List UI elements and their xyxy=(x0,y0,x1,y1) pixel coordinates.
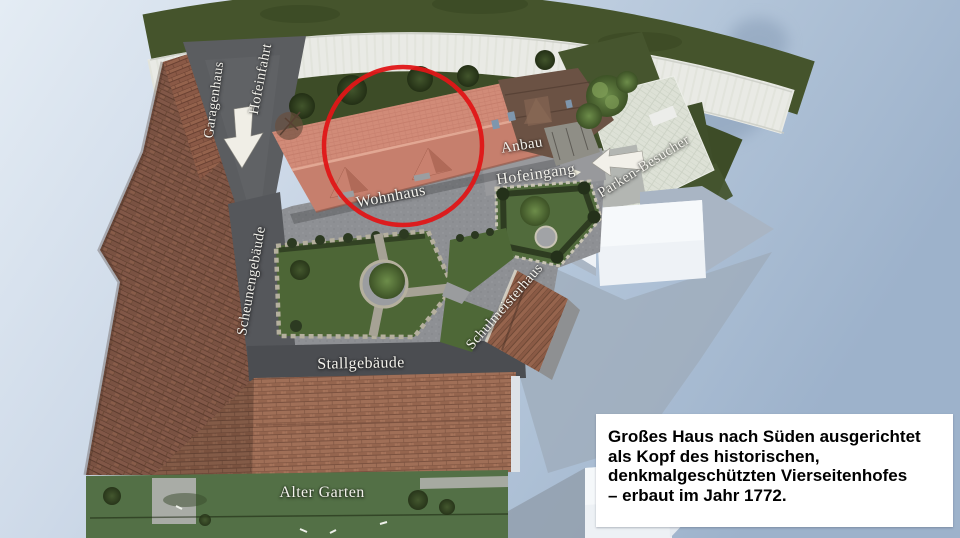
annotation-box: Großes Haus nach Süden ausgerichtet als … xyxy=(596,414,953,527)
label-stallgebaeude: Stallgebäude xyxy=(317,354,405,374)
old-garden xyxy=(86,470,508,538)
label-alter-garten: Alter Garten xyxy=(279,484,364,502)
annotation-line: denkmalgeschützten Vierseitenhofes xyxy=(608,466,945,486)
site-plan-slide: Garagenhaus Hofeinfahrt Wohnhaus Anbau H… xyxy=(0,0,960,538)
annotation-line: – erbaut im Jahr 1772. xyxy=(608,486,945,506)
annotation-line: als Kopf des historischen, xyxy=(608,447,945,467)
courtyard-garden xyxy=(276,229,453,337)
annotation-line: Großes Haus nach Süden ausgerichtet xyxy=(608,427,945,447)
